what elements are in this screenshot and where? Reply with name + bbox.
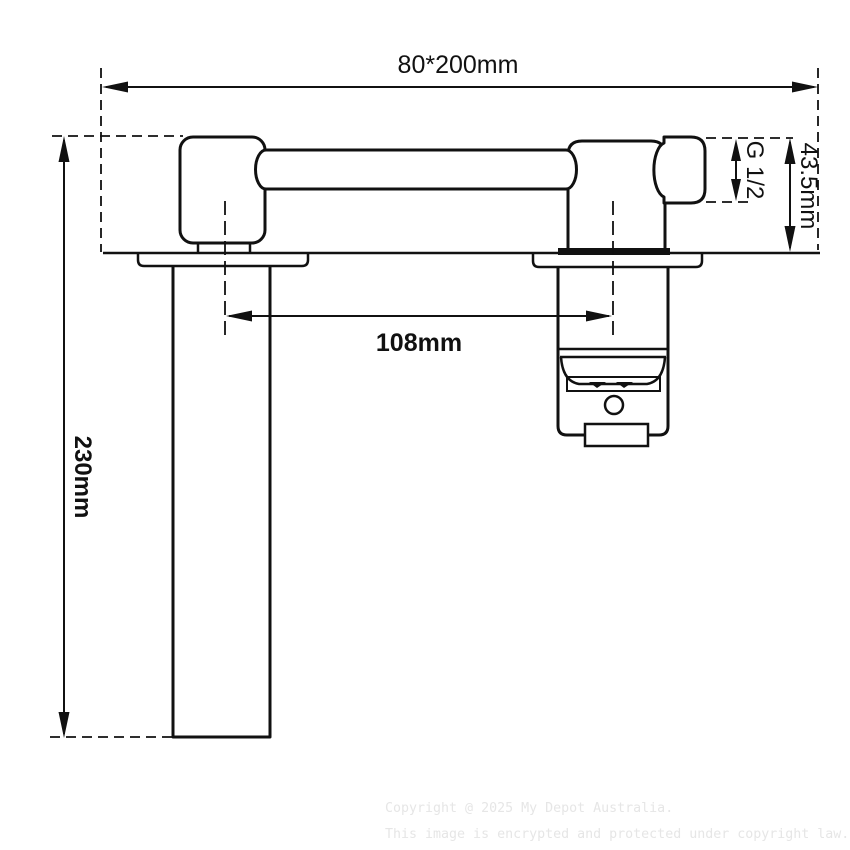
spout-drop-pipe [173,266,270,737]
dimension-centre-distance: 108mm [226,311,612,358]
watermark: Copyright @ 2025 My Depot Australia. Thi… [385,801,849,842]
right-cover-plate [533,254,702,267]
dimension-drop-height: 230mm [50,136,183,738]
valve-screw-hole [605,396,623,414]
watermark-line1: Copyright @ 2025 My Depot Australia. [385,801,673,816]
arrowhead-top [731,139,741,161]
seal-band [558,248,670,255]
left-cover-plate [138,253,308,266]
arrowhead-left [102,82,128,93]
wall-and-plates [103,248,820,267]
drop-pipe-outline [173,266,270,737]
arrowhead-bottom [59,712,70,738]
drawing-canvas: 80*200mm 108mm 230mm G 1/2 43.5mm Copyri… [0,0,850,850]
faucet-body [180,137,705,254]
spout-tube [256,150,577,189]
outlet-connector [654,137,705,203]
dimension-thread: G 1/2 [706,138,793,202]
dimension-body-height: 43.5mm [785,138,823,252]
dimension-label-centre-distance: 108mm [376,329,462,357]
arrowhead-bottom [731,179,741,201]
watermark-line2: This image is encrypted and protected un… [385,827,849,842]
dimension-label-overall-width: 80*200mm [398,51,519,79]
arrowhead-right [792,82,818,93]
arrowhead-top [59,136,70,162]
arrowhead-bottom [785,226,796,252]
right-mixer-block [568,141,665,253]
dimension-label-thread: G 1/2 [741,141,768,200]
dimension-label-body-height: 43.5mm [795,143,822,230]
faucet-dimension-diagram: 80*200mm 108mm 230mm G 1/2 43.5mm Copyri… [0,0,850,850]
arrowhead-top [785,138,796,164]
dimension-label-drop-height: 230mm [69,436,96,519]
valve-bottom-tab [585,424,648,446]
left-spout-block [180,137,265,243]
